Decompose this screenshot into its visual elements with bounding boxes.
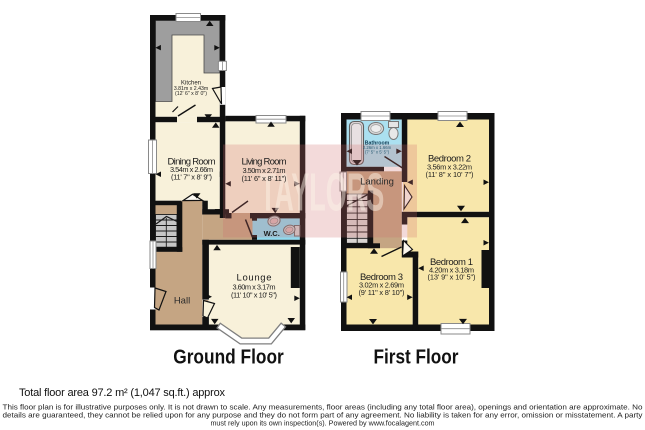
svg-text:(13' 9" x 10' 5"): (13' 9" x 10' 5") bbox=[428, 273, 476, 282]
svg-text:Landing: Landing bbox=[360, 177, 394, 188]
svg-text:Hall: Hall bbox=[174, 296, 190, 307]
svg-text:(11' 7" x 8' 9"): (11' 7" x 8' 9") bbox=[171, 173, 212, 182]
svg-text:Total floor area 97.2 m² (1,04: Total floor area 97.2 m² (1,047 sq.ft.) … bbox=[19, 387, 226, 399]
svg-text:must rely upon its own inspect: must rely upon its own inspection(s). Po… bbox=[210, 419, 434, 428]
svg-text:(12' 6" x 8' 0"): (12' 6" x 8' 0") bbox=[175, 91, 207, 97]
svg-text:(11' 8" x 10' 7"): (11' 8" x 10' 7") bbox=[426, 170, 474, 179]
svg-text:Ground Floor: Ground Floor bbox=[173, 347, 284, 369]
svg-text:(9' 11" x 8' 10"): (9' 11" x 8' 10") bbox=[359, 288, 405, 297]
svg-text:(7' 5" x 5' 5"): (7' 5" x 5' 5") bbox=[365, 149, 390, 154]
svg-text:First Floor: First Floor bbox=[374, 347, 459, 369]
svg-text:(11' 10" x 10' 5"): (11' 10" x 10' 5") bbox=[231, 291, 277, 300]
svg-text:(11' 6" x 8' 11"): (11' 6" x 8' 11") bbox=[242, 174, 287, 183]
svg-text:W.C.: W.C. bbox=[264, 229, 280, 238]
